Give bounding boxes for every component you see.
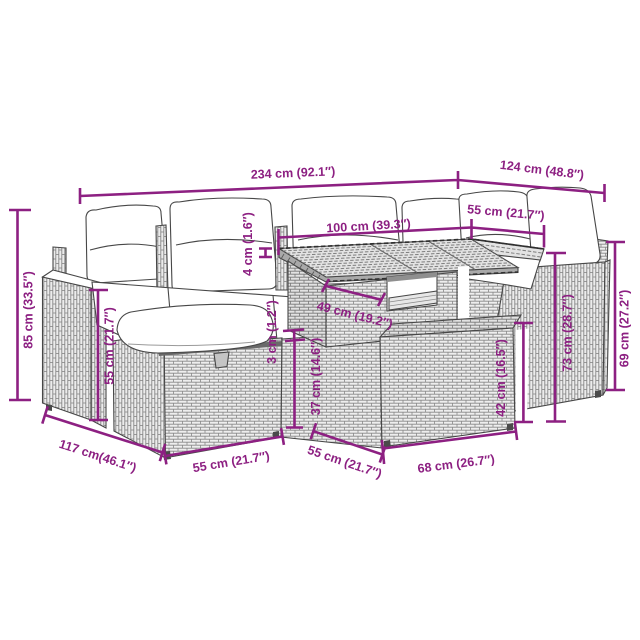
svg-text:4 cm (1.6″): 4 cm (1.6″) — [241, 212, 255, 276]
svg-text:42 cm (16.5″): 42 cm (16.5″) — [494, 339, 508, 417]
svg-text:85 cm (33.5″): 85 cm (33.5″) — [22, 271, 36, 349]
svg-text:73 cm (28.7″): 73 cm (28.7″) — [561, 294, 575, 372]
svg-text:3 cm (1.2″): 3 cm (1.2″) — [265, 300, 279, 364]
svg-text:55 cm (21.7″): 55 cm (21.7″) — [103, 307, 117, 385]
svg-text:69 cm (27.2″): 69 cm (27.2″) — [618, 290, 632, 368]
svg-text:37 cm (14.6″): 37 cm (14.6″) — [309, 338, 323, 416]
